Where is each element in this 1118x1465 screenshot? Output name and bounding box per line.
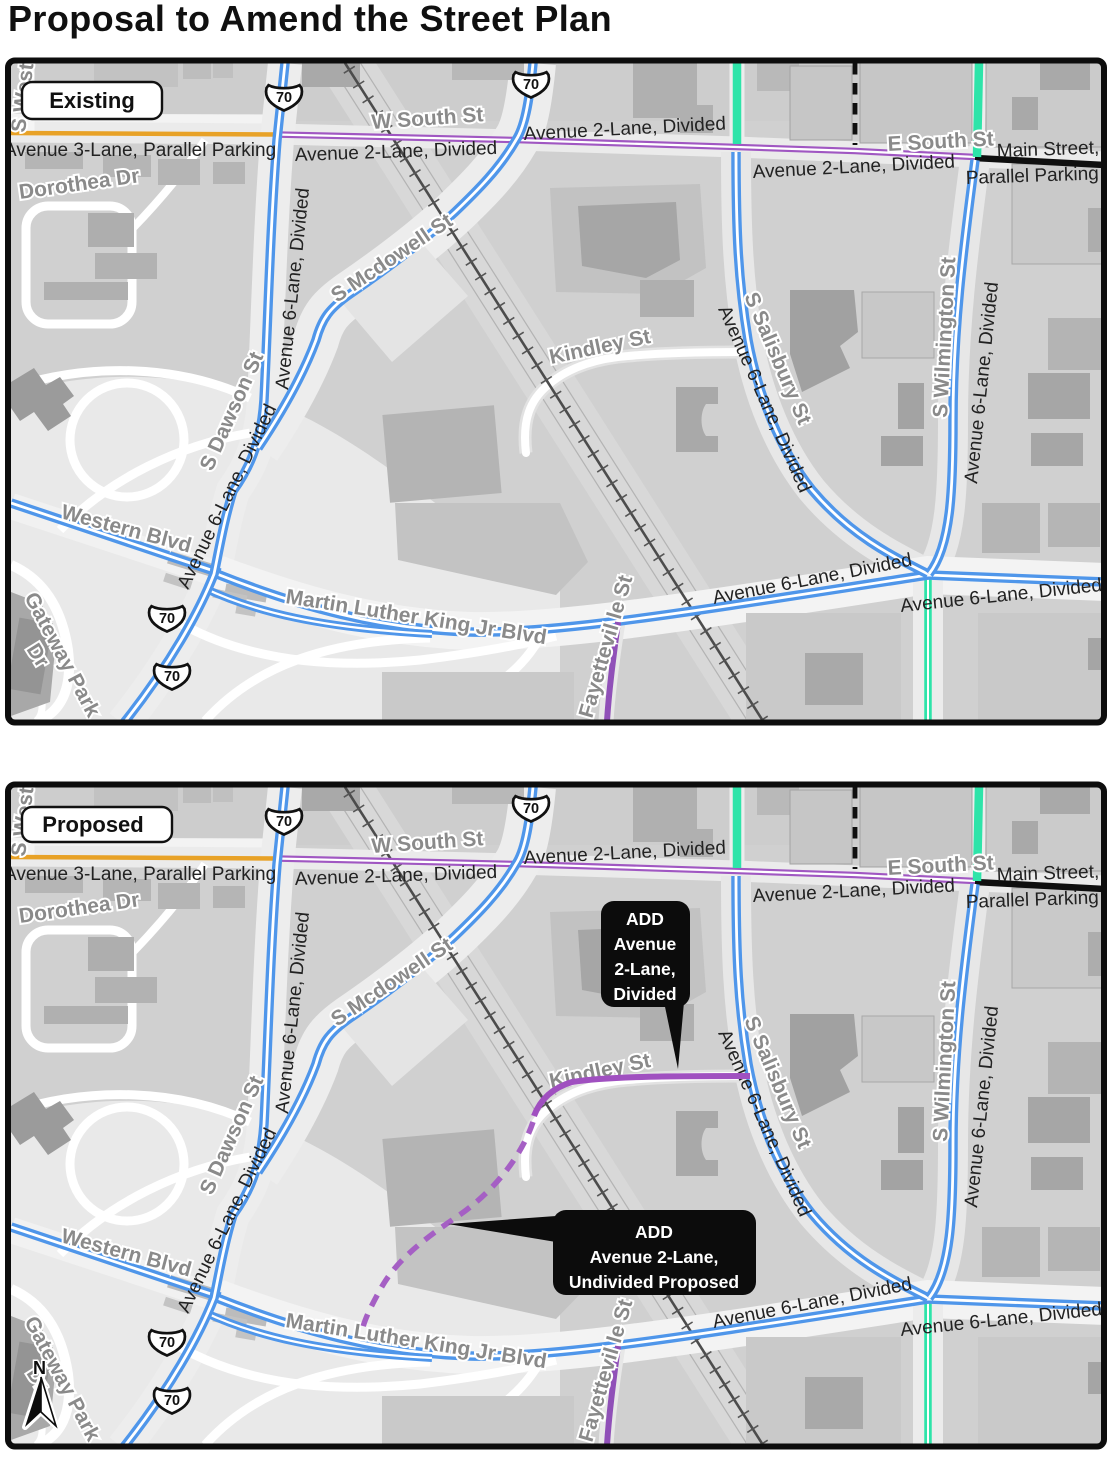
svg-text:Divided: Divided bbox=[613, 984, 676, 1004]
svg-text:Proposed: Proposed bbox=[42, 812, 143, 837]
svg-text:2-Lane,: 2-Lane, bbox=[614, 959, 675, 979]
svg-text:Undivided Proposed: Undivided Proposed bbox=[569, 1272, 739, 1292]
svg-text:Existing: Existing bbox=[49, 88, 135, 113]
svg-text:N: N bbox=[33, 1358, 46, 1378]
svg-text:ADD: ADD bbox=[626, 909, 664, 929]
svg-text:Avenue 2-Lane,: Avenue 2-Lane, bbox=[590, 1247, 719, 1267]
svg-text:ADD: ADD bbox=[635, 1222, 673, 1242]
svg-text:Avenue: Avenue bbox=[614, 934, 677, 954]
